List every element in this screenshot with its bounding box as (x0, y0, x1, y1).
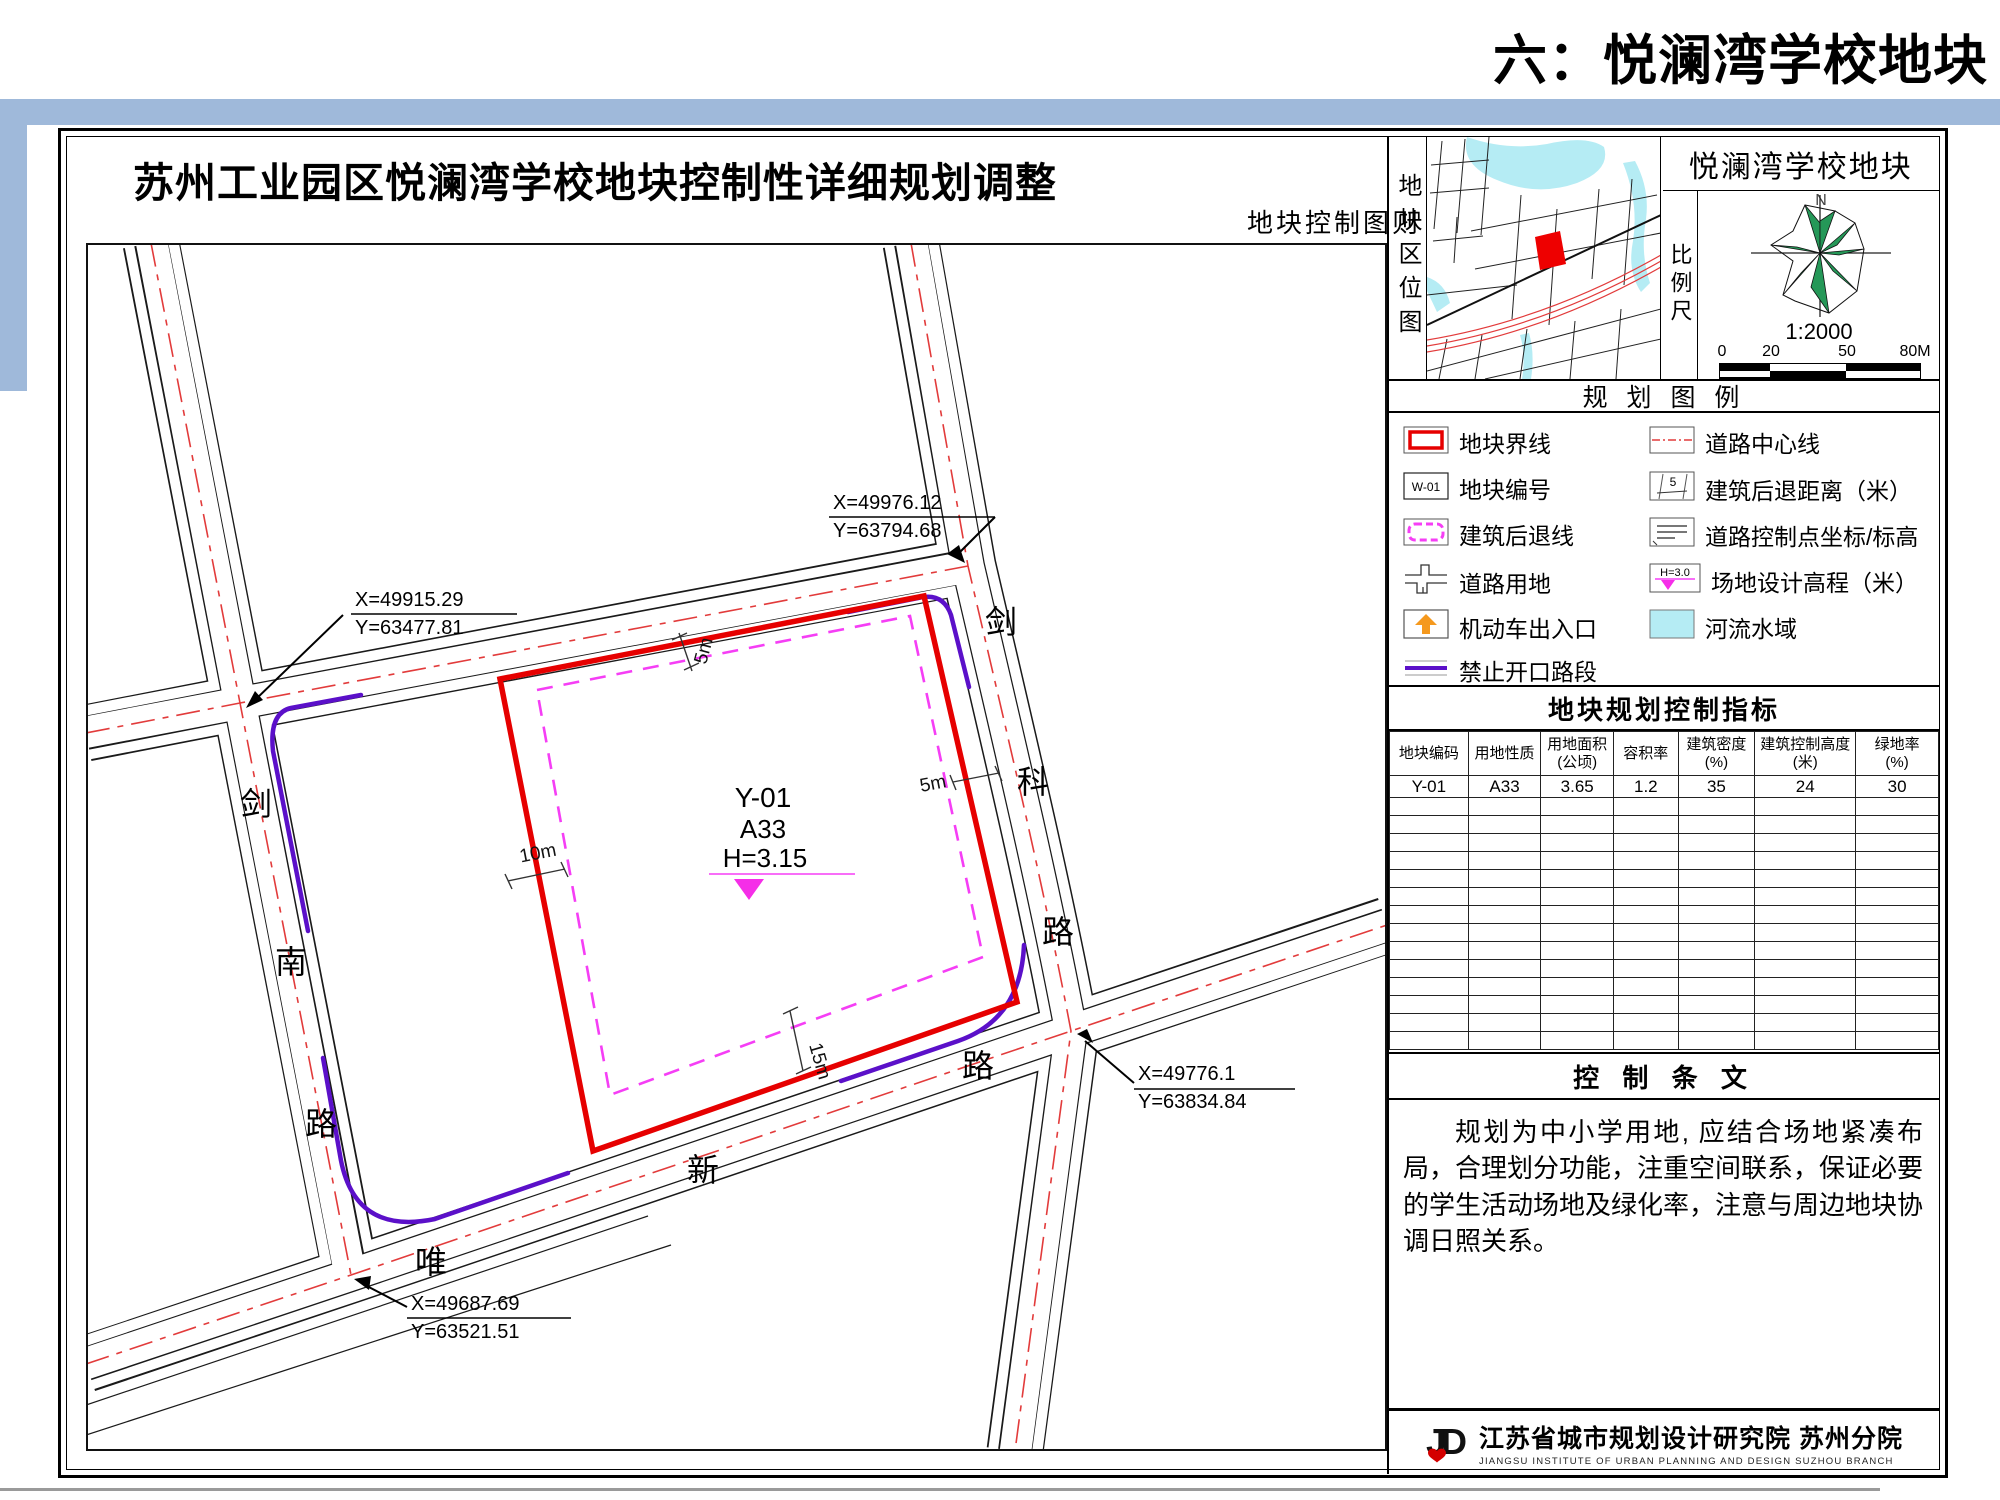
svg-text:X=49915.29: X=49915.29 (355, 589, 463, 611)
provisions-text: 规划为中小学用地, 应结合场地紧凑布局，合理划分功能，注重空间联系，保证必要的学… (1389, 1100, 1939, 1260)
institute-name-en: JIANGSU INSTITUTE OF URBAN PLANNING AND … (1479, 1456, 1894, 1467)
legend-item-river: 河流水域 (1649, 609, 1797, 644)
thumb-plot-marker (1535, 231, 1566, 270)
svg-text:路: 路 (962, 1048, 994, 1084)
institute-footer: JD 江苏省城市规划设计研究院 苏州分院 JIANGSU INSTITUTE O… (1389, 1410, 1939, 1474)
legend-title: 规 划 图 例 (1583, 378, 1746, 414)
legend-header: 规 划 图 例 (1389, 381, 1939, 413)
setback-line-icon (1403, 518, 1449, 551)
sheet-subtitle: 地块控制图则 (1001, 203, 1421, 240)
scale-ratio: 1:2000 (1699, 319, 1939, 345)
scale-tick-0: 0 (1718, 343, 1727, 361)
scale-ticks: 0 20 50 80M (1719, 343, 1929, 361)
location-label-cell: 地块区位图 (1389, 137, 1427, 379)
indicator-table-zone: 地块规划控制指标 地块编码 用地性质 用地面积 (公顷) 容积率 建筑密度 (%… (1389, 687, 1939, 1052)
vehicle-entrance-icon (1403, 609, 1449, 644)
slide: 六：悦澜湾学校地块 苏州工业园区悦澜湾学校地块控制性详细规划调整 地块控制图则 (0, 0, 2000, 1500)
svg-text:Y=63794.68: Y=63794.68 (833, 520, 941, 542)
svg-text:剑: 剑 (985, 604, 1017, 640)
svg-text:W-01: W-01 (1412, 480, 1441, 494)
svg-text:路: 路 (305, 1106, 337, 1142)
svg-text:X=49976.12: X=49976.12 (833, 492, 941, 514)
legend-item-site-elevation: H=3.0 场地设计高程（米） (1649, 563, 1918, 598)
table-title: 地块规划控制指标 (1389, 687, 1939, 731)
slide-title: 六：悦澜湾学校地块 (1493, 16, 1988, 95)
road-land-icon (1403, 563, 1449, 600)
compass-north-label: N (1815, 192, 1827, 209)
svg-text:剑: 剑 (240, 786, 272, 822)
legend-item-setback-line: 建筑后退线 (1403, 517, 1574, 551)
road-centerline-icon (1649, 426, 1695, 459)
bottom-rule (0, 1488, 1880, 1491)
drawing-sheet: 苏州工业园区悦澜湾学校地块控制性详细规划调整 地块控制图则 (58, 128, 1948, 1478)
table-header-row: 地块编码 用地性质 用地面积 (公顷) 容积率 建筑密度 (%) 建筑控制高度 … (1390, 732, 1939, 776)
plot-labels: Y-01 A33 H=3.15 (709, 782, 855, 900)
location-label: 地块区位图 (1390, 173, 1425, 343)
plan-map-svg: 5m 5m 10m 15m Y-01 A33 H=3.15 剑 南 (86, 243, 1387, 1451)
location-map-svg (1427, 137, 1661, 379)
scale-tick-50: 50 (1838, 343, 1856, 361)
scale-tick-80: 80M (1899, 343, 1930, 361)
institute-logo: JD (1425, 1421, 1469, 1465)
scale-tick-20: 20 (1762, 343, 1780, 361)
compass-cell: N (1699, 191, 1939, 379)
top-accent-band (0, 99, 2000, 125)
plan-map: 5m 5m 10m 15m Y-01 A33 H=3.15 剑 南 (86, 243, 1387, 1451)
legend: 地块界线 道路中心线 W-01 地块编号 5 (1389, 413, 1939, 687)
svg-text:新: 新 (687, 1152, 719, 1188)
legend-item-plot-boundary: 地块界线 (1403, 425, 1551, 459)
location-map-thumbnail (1427, 137, 1661, 379)
plot-landuse: A33 (740, 814, 786, 844)
scale-label-cell: 比例尺 (1663, 191, 1698, 379)
legend-item-road-centerline: 道路中心线 (1649, 425, 1820, 459)
legend-item-road-land: 道路用地 (1403, 563, 1551, 600)
control-point-icon (1649, 517, 1695, 552)
legend-item-no-access: 禁止开口路段 (1403, 653, 1597, 687)
svg-text:唯: 唯 (415, 1244, 447, 1280)
panel-title: 悦澜湾学校地块 (1663, 137, 1940, 191)
scale-bar (1719, 363, 1921, 379)
location-right-cell: 悦澜湾学校地块 比例尺 N (1663, 137, 1940, 379)
svg-text:路: 路 (1042, 914, 1074, 950)
site-elevation-icon: H=3.0 (1649, 563, 1701, 598)
dim-east: 5m (918, 771, 948, 797)
plot-boundary-icon (1403, 426, 1449, 459)
svg-text:5: 5 (1670, 475, 1677, 489)
legend-item-control-point: 道路控制点坐标/标高 (1649, 517, 1918, 552)
legend-item-vehicle-entrance: 机动车出入口 (1403, 609, 1597, 644)
dim-west: 10m (518, 840, 558, 868)
legend-item-setback-distance: 5 建筑后退距离（米） (1649, 471, 1912, 506)
left-accent-stripe (0, 99, 27, 391)
legend-item-plot-number: W-01 地块编号 (1403, 471, 1551, 505)
no-access-icon (1403, 655, 1449, 686)
provisions-header: 控 制 条 文 (1389, 1052, 1939, 1100)
svg-text:南: 南 (275, 944, 307, 980)
institute-name-cn: 江苏省城市规划设计研究院 苏州分院 (1479, 1419, 1903, 1455)
scale-label: 比例尺 (1664, 243, 1696, 327)
setback-distance-icon: 5 (1649, 471, 1695, 506)
sheet-main-title: 苏州工业园区悦澜湾学校地块控制性详细规划调整 (133, 149, 1057, 209)
location-row: 地块区位图 (1389, 137, 1939, 381)
plot-elevation: H=3.15 (723, 843, 808, 873)
indicator-table: 地块编码 用地性质 用地面积 (公顷) 容积率 建筑密度 (%) 建筑控制高度 … (1389, 731, 1939, 1050)
svg-text:Y=63834.84: Y=63834.84 (1138, 1091, 1246, 1113)
info-panel: 地块区位图 (1387, 137, 1939, 1474)
provisions-title: 控 制 条 文 (1573, 1058, 1755, 1095)
plot-code: Y-01 (735, 782, 792, 813)
svg-text:科: 科 (1017, 764, 1049, 800)
elevation-triangle (734, 879, 764, 900)
svg-text:Y=63521.51: Y=63521.51 (411, 1321, 519, 1343)
svg-text:H=3.0: H=3.0 (1660, 567, 1690, 579)
svg-text:X=49687.69: X=49687.69 (411, 1293, 519, 1315)
svg-text:X=49776.1: X=49776.1 (1138, 1063, 1235, 1085)
compass-svg: N (1699, 191, 1939, 319)
table-row: Y-01 A33 3.65 1.2 35 24 30 (1390, 776, 1939, 798)
river-icon (1649, 609, 1695, 644)
thumb-main-road (1427, 215, 1661, 325)
plot-number-icon: W-01 (1403, 472, 1449, 505)
provisions-body: 规划为中小学用地, 应结合场地紧凑布局，合理划分功能，注重空间联系，保证必要的学… (1389, 1100, 1939, 1410)
svg-text:Y=63477.81: Y=63477.81 (355, 617, 463, 639)
